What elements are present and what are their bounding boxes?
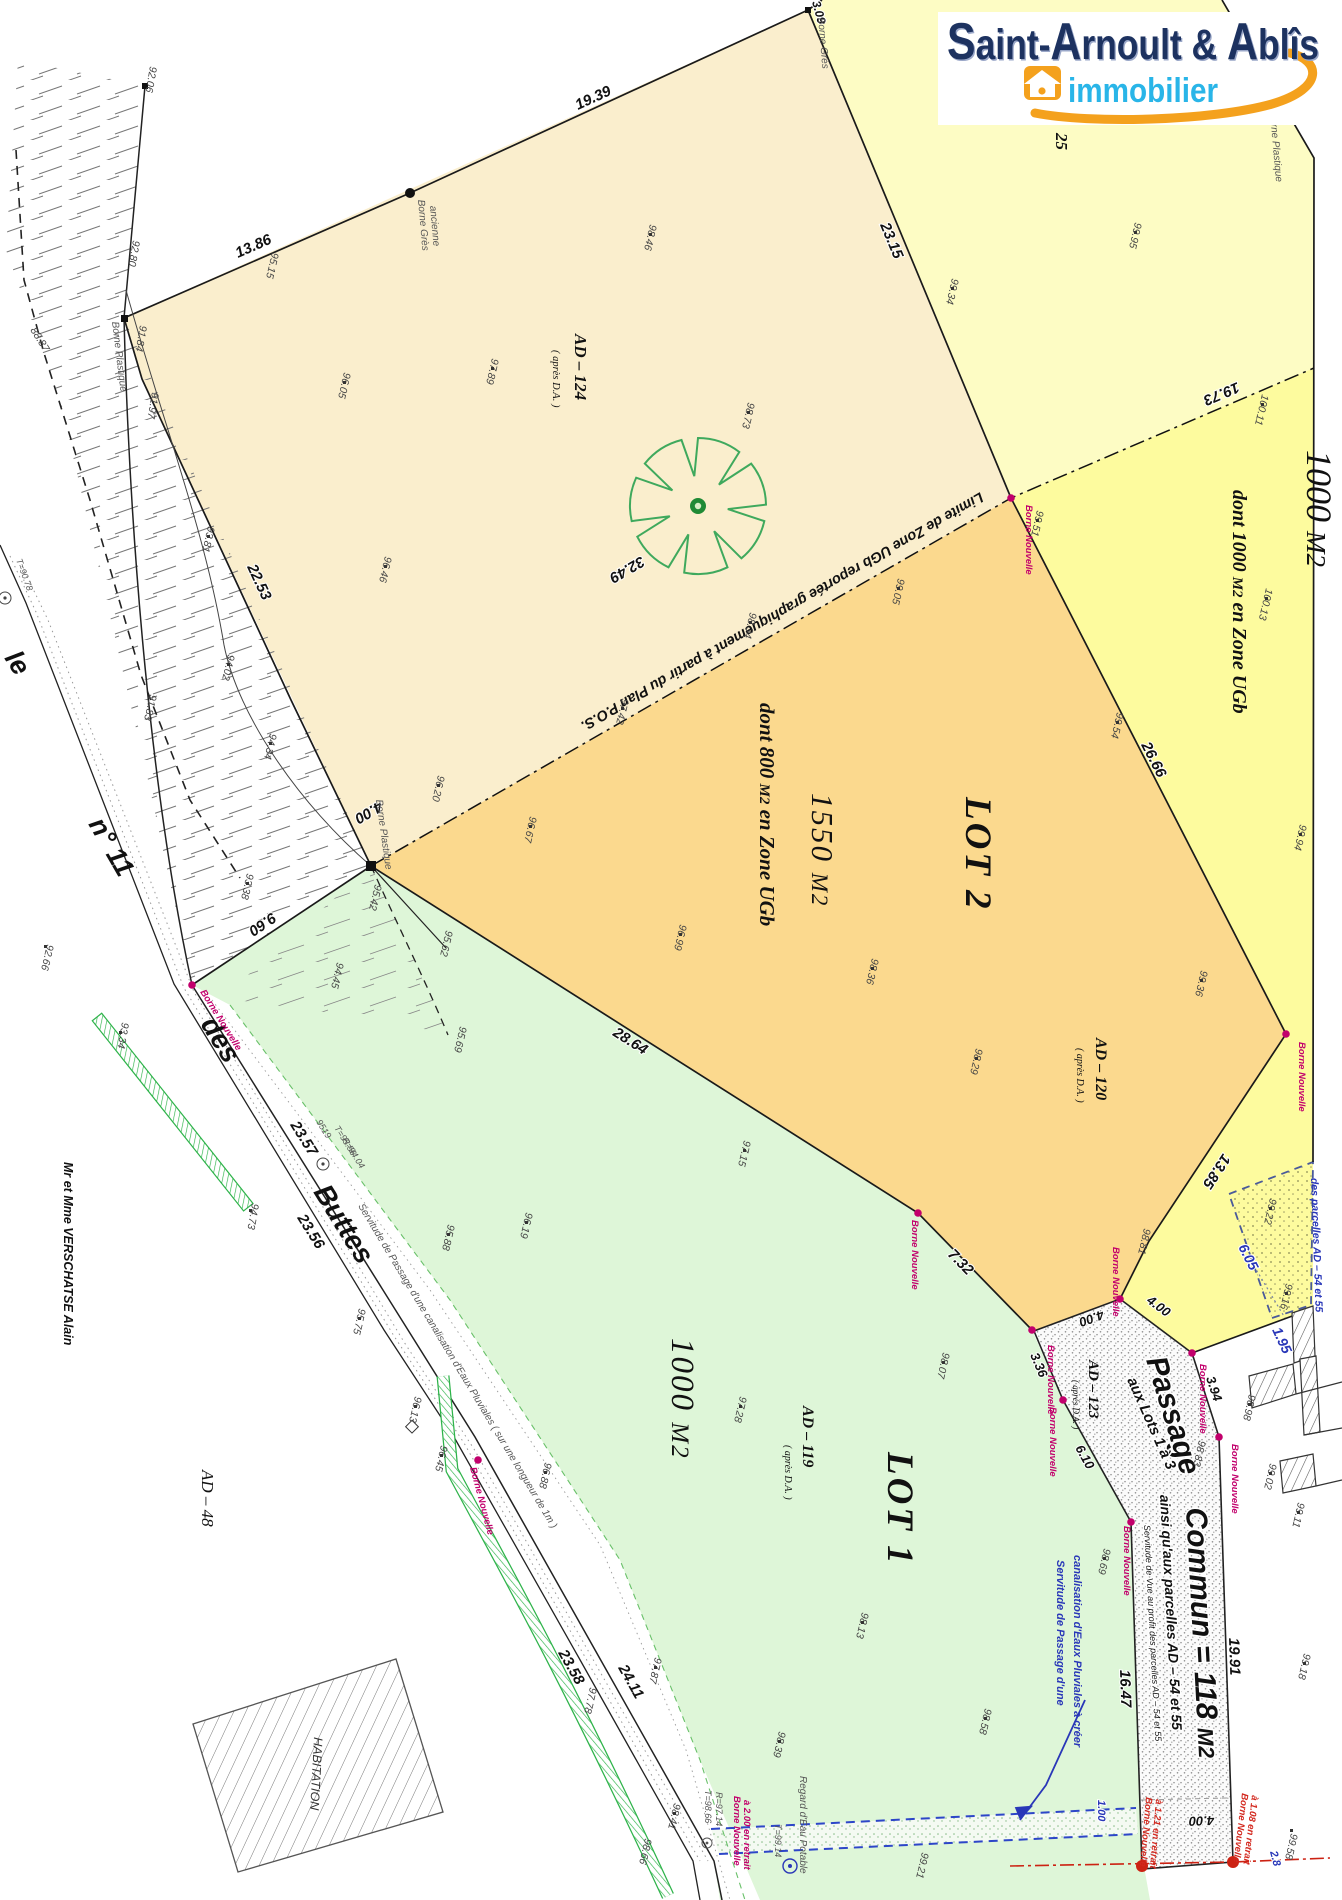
svg-text:19.91: 19.91	[1225, 1638, 1243, 1676]
svg-text:AD – 123: AD – 123	[1085, 1359, 1101, 1419]
svg-text:1.00: 1.00	[1095, 1800, 1107, 1822]
svg-text:canalisation d'Eaux Pluviale: canalisation d'Eaux Pluviales à créer	[1071, 1555, 1083, 1748]
svg-text:LOT 2: LOT 2	[957, 796, 998, 912]
svg-text:Servitude de Passage d'une: Servitude de Passage d'une	[1054, 1560, 1066, 1706]
svg-text:Regard d'Eau Potable: Regard d'Eau Potable	[797, 1776, 808, 1874]
svg-text:Borne Nouvelle: Borne Nouvelle	[1047, 1407, 1058, 1477]
svg-text:16.47: 16.47	[1116, 1670, 1134, 1709]
svg-text:Borne Nouvelle: Borne Nouvelle	[731, 1796, 742, 1866]
svg-text:Borne Nouvelle: Borne Nouvelle	[1229, 1444, 1240, 1514]
svg-text:T=98.66: T=98.66	[703, 1790, 713, 1823]
svg-text:AD – 48: AD – 48	[198, 1469, 217, 1527]
svg-text:AD – 120: AD – 120	[1092, 1037, 1109, 1100]
svg-text:LOT 1: LOT 1	[879, 1451, 920, 1567]
svg-text:T=99.14: T=99.14	[773, 1824, 783, 1857]
svg-text:dont 1000 M2 en Zone UGb: dont 1000 M2 en Zone UGb	[1228, 490, 1250, 714]
svg-text:Borne Nouvelle: Borne Nouvelle	[1045, 1345, 1056, 1415]
svg-text:immobilier: immobilier	[1068, 72, 1218, 110]
svg-text:( après D.A. ): ( après D.A. )	[550, 350, 561, 408]
svg-text:Borne Nouvelle: Borne Nouvelle	[1121, 1526, 1132, 1596]
svg-text:Borne Nouvelle: Borne Nouvelle	[1296, 1042, 1307, 1112]
svg-text:R=97.14: R=97.14	[714, 1792, 724, 1826]
svg-text:( après D.A. ): ( après D.A. )	[782, 1445, 793, 1500]
svg-text:AD – 124: AD – 124	[571, 333, 590, 400]
svg-text:4.00: 4.00	[1188, 1813, 1216, 1829]
svg-text:25: 25	[1052, 132, 1071, 151]
svg-text:Saint-Arnoult & Ablîs: Saint-Arnoult & Ablîs	[947, 13, 1319, 71]
svg-text:Borne Nouvelle: Borne Nouvelle	[909, 1220, 920, 1290]
svg-text:dont 800 M2 en Zone UGb: dont 800 M2 en Zone UGb	[755, 703, 779, 926]
svg-text:( après D.A. ): ( après D.A. )	[1071, 1380, 1081, 1429]
svg-text:AD – 119: AD – 119	[799, 1405, 816, 1467]
svg-text:Borne Nouvelle: Borne Nouvelle	[1197, 1364, 1208, 1434]
svg-text:à 2.00 en retrait: à 2.00 en retrait	[741, 1800, 752, 1871]
svg-text:Mr et Mme VERSCHATSE Alain: Mr et Mme VERSCHATSE Alain	[61, 1162, 75, 1346]
svg-text:( après D.A. ): ( après D.A. )	[1074, 1048, 1085, 1103]
svg-text:Borne Nouvelle: Borne Nouvelle	[1110, 1247, 1121, 1317]
svg-text:Borne Nouvelle: Borne Nouvelle	[1023, 505, 1034, 575]
